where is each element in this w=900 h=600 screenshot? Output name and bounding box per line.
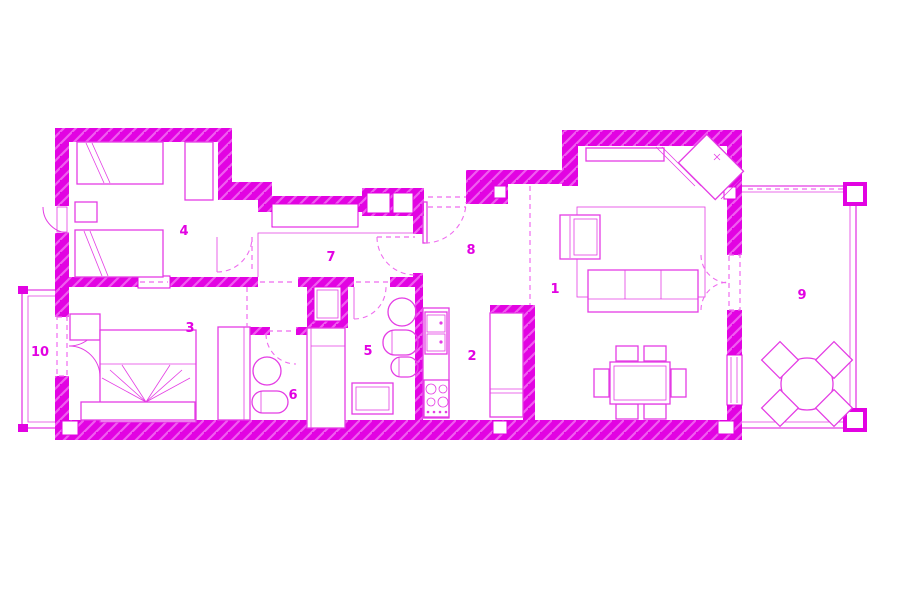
dining-chair (616, 346, 638, 361)
washbasin (388, 298, 416, 326)
sideboard (586, 148, 664, 161)
nightstand (75, 202, 97, 222)
entry-closet-left (367, 193, 390, 213)
kitchen-sink (425, 312, 447, 354)
toilet (252, 391, 288, 413)
sofa (588, 270, 698, 312)
dining-table (610, 362, 670, 404)
room-label-6: 6 (288, 388, 297, 403)
duct-shaft (314, 287, 341, 321)
entrance-door (423, 197, 466, 243)
dresser (70, 314, 100, 340)
room-label-9: 9 (797, 288, 806, 303)
balcony-french-door (57, 317, 67, 376)
room-label-2: 2 (467, 349, 476, 364)
entry-closet-right (393, 193, 413, 213)
bench (81, 402, 195, 420)
washbasin (253, 357, 281, 385)
room-label-3: 3 (185, 321, 194, 336)
armchair (560, 215, 600, 259)
door-hall-corridor (377, 237, 415, 275)
room-label-8: 8 (466, 243, 475, 258)
dining-chair (594, 369, 609, 397)
bathroom6-fixtures (252, 357, 288, 413)
door-bedroom4 (217, 237, 252, 272)
bathroom5-fixtures (352, 298, 418, 414)
floor-plan-canvas: 1 2 3 4 5 6 7 8 9 10 (0, 0, 900, 600)
bedroom3-furniture (70, 314, 250, 422)
wardrobe (185, 142, 213, 200)
twin-bed-1 (77, 142, 163, 184)
dining-chair (671, 369, 686, 397)
bidet (391, 357, 418, 377)
shower-tray (352, 383, 393, 414)
dining-chair (644, 404, 666, 419)
room-label-4: 4 (179, 224, 188, 239)
terrace-pillar-top (845, 184, 865, 204)
dining-chair (644, 346, 666, 361)
fridge-pantry-unit (490, 313, 523, 417)
toilet (383, 330, 418, 355)
room-label-1: 1 (550, 282, 559, 297)
room-label-5: 5 (363, 344, 372, 359)
stove (424, 380, 449, 417)
wardrobe-bedroom3 (218, 327, 250, 420)
terrace-french-door (701, 255, 740, 310)
terrace-furniture (762, 342, 853, 427)
bedroom4-window (57, 207, 67, 232)
bedroom4-furniture (75, 142, 213, 277)
dining-set (594, 346, 686, 419)
living-room-window (727, 355, 742, 405)
door-bathroom6 (266, 331, 296, 364)
dining-chair (616, 404, 638, 419)
corridor-closet (272, 204, 358, 227)
room-label-10: 10 (31, 345, 49, 360)
twin-bed-2 (75, 230, 163, 277)
door-bathroom5 (354, 282, 388, 319)
closet-column (307, 328, 345, 428)
floor-plan-page: 1 2 3 4 5 6 7 8 9 10 (0, 0, 900, 600)
room-label-7: 7 (326, 250, 335, 265)
